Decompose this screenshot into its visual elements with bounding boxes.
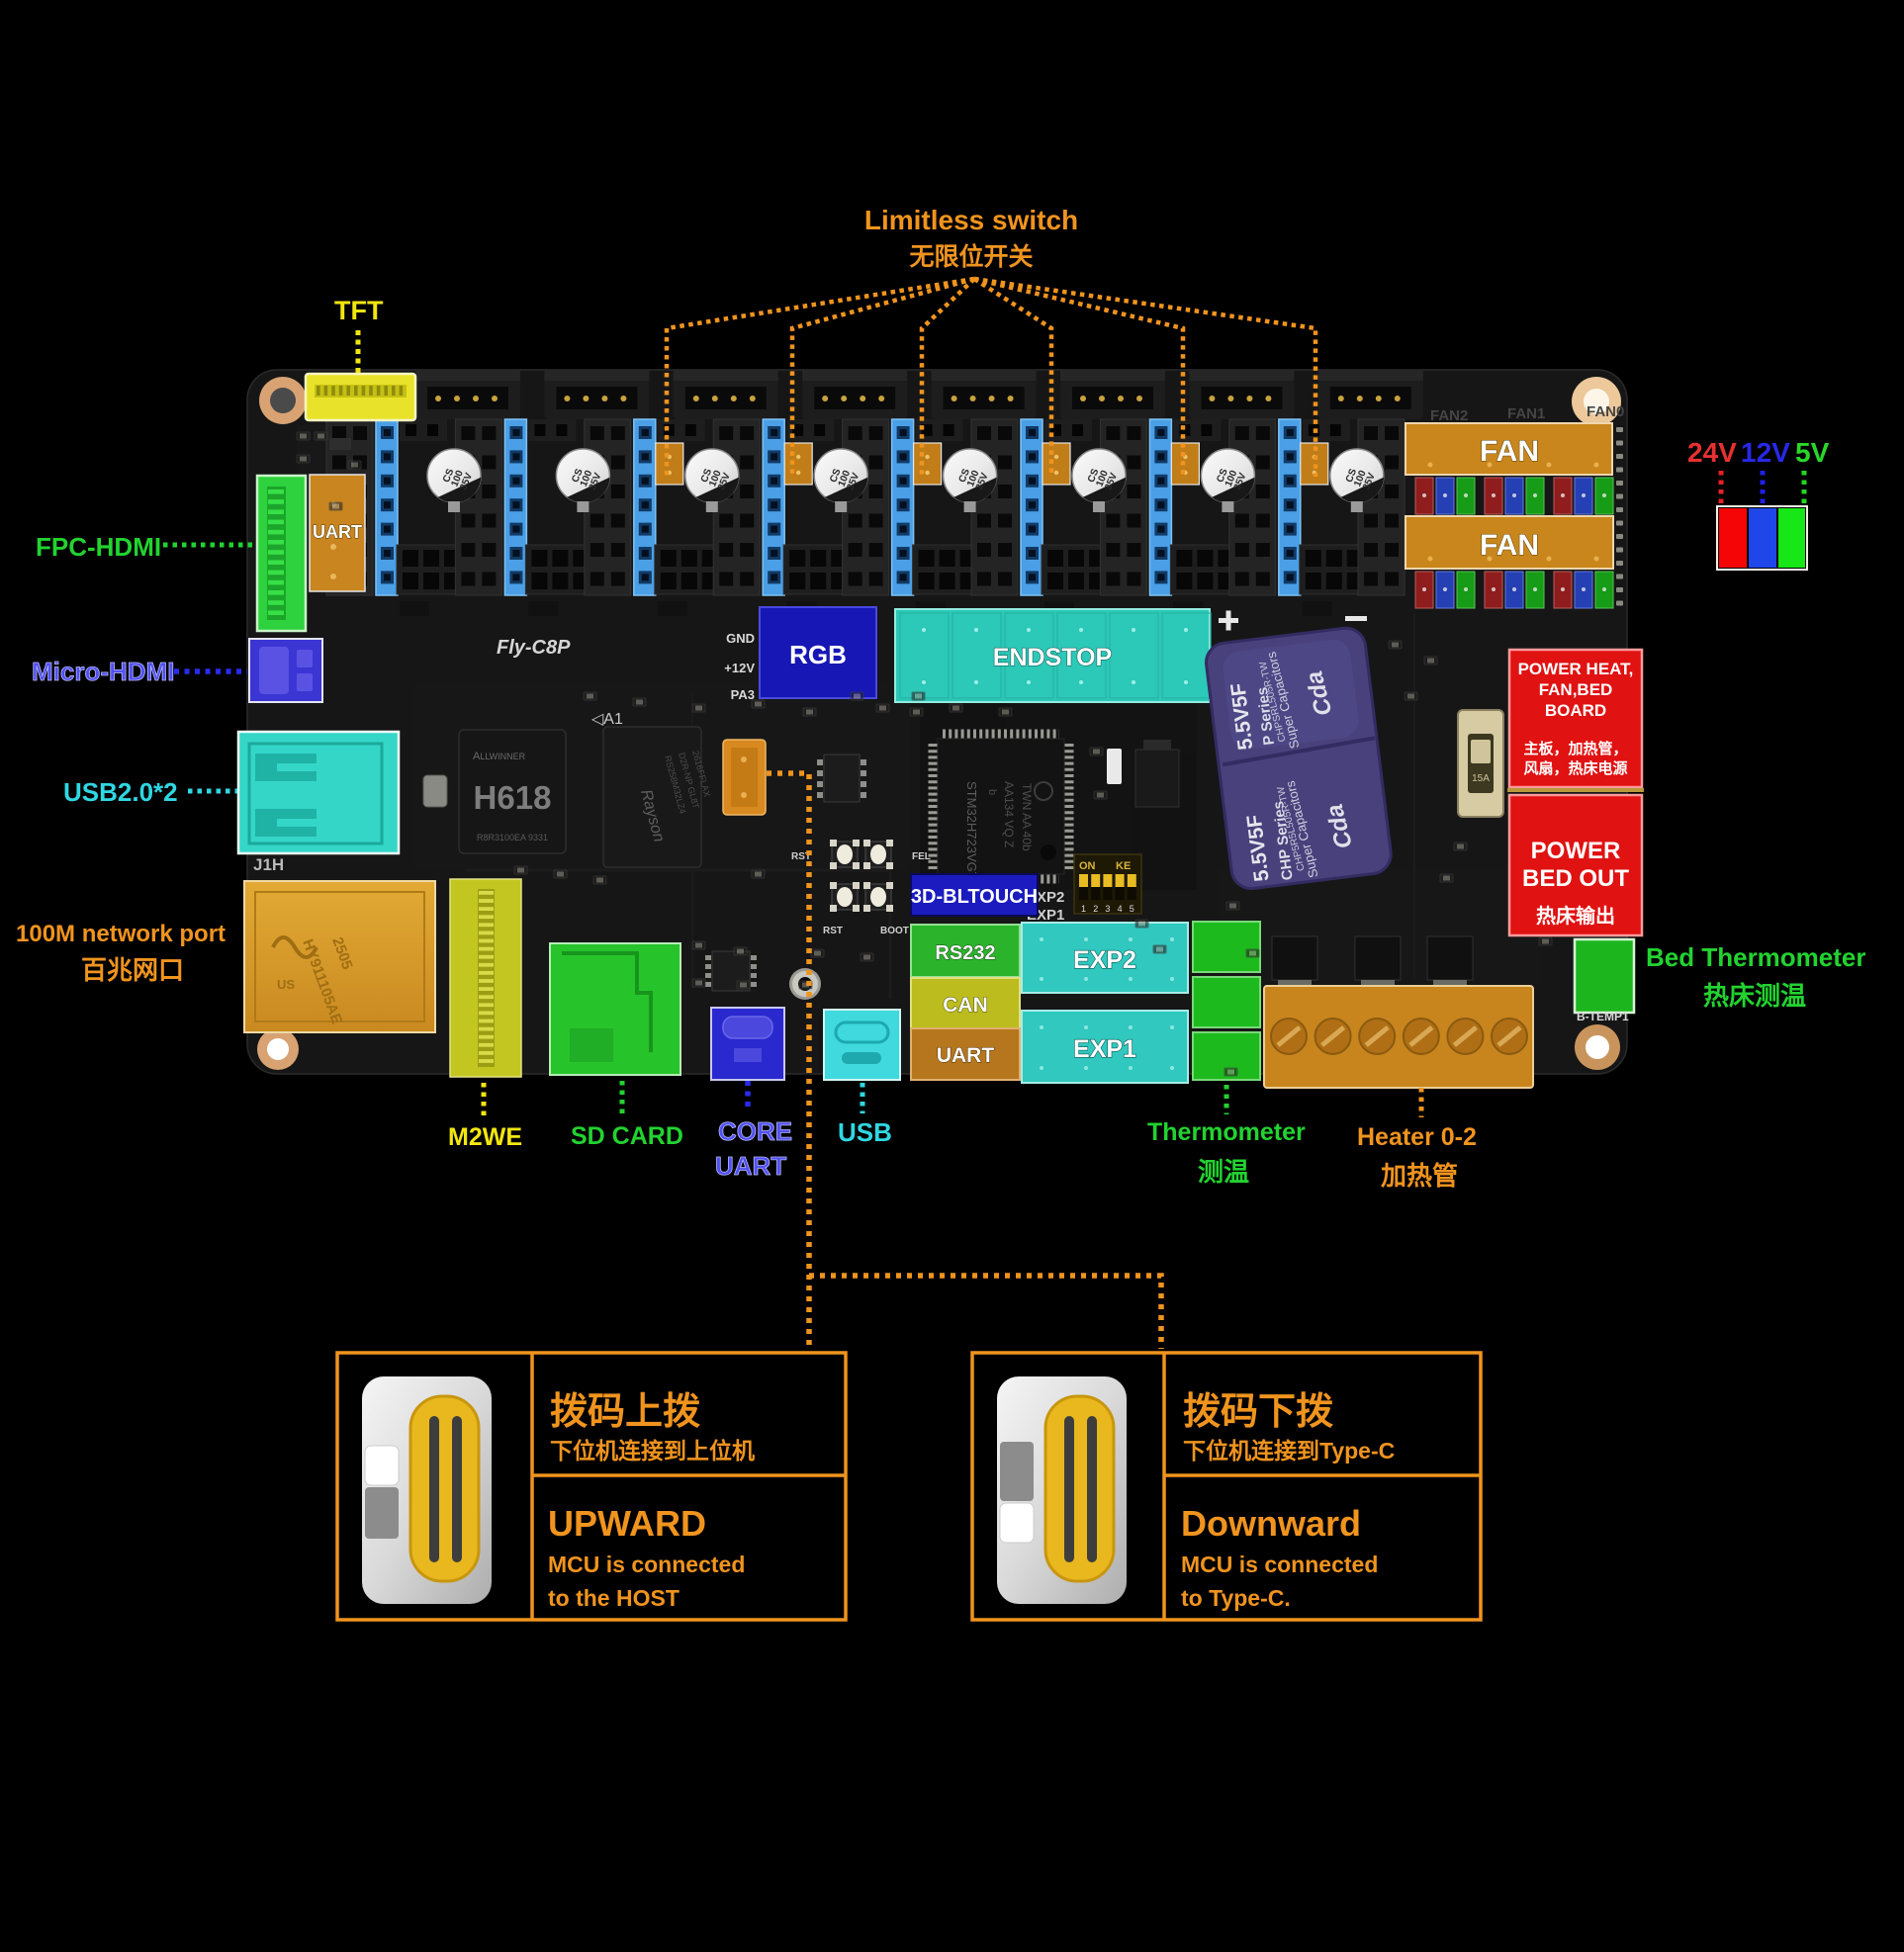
svg-text:无限位开关: 无限位开关 [909, 242, 1033, 271]
svg-text:◁A1: ◁A1 [591, 711, 623, 728]
svg-text:USB: USB [838, 1117, 892, 1147]
svg-text:b: b [986, 789, 998, 795]
svg-text:100M network port: 100M network port [16, 921, 226, 947]
svg-text:百兆网口: 百兆网口 [81, 955, 184, 985]
svg-text:BOOT: BOOT [880, 926, 909, 936]
svg-text:下位机连接到Type-C: 下位机连接到Type-C [1183, 1438, 1395, 1464]
svg-text:TFT: TFT [334, 296, 384, 325]
svg-text:15A: 15A [1472, 773, 1490, 784]
svg-text:FEL: FEL [912, 851, 931, 862]
svg-text:to the HOST: to the HOST [548, 1585, 680, 1611]
svg-text:Heater 0-2: Heater 0-2 [1357, 1123, 1477, 1151]
svg-text:下位机连接到上位机: 下位机连接到上位机 [550, 1438, 755, 1464]
svg-text:1: 1 [1081, 904, 1086, 914]
svg-text:US: US [277, 977, 295, 992]
svg-text:拨码上拨: 拨码上拨 [550, 1391, 700, 1433]
svg-text:测温: 测温 [1198, 1157, 1249, 1187]
svg-text:ENDSTOP: ENDSTOP [993, 644, 1112, 671]
svg-text:CORE: CORE [718, 1116, 792, 1146]
svg-text:SD CARD: SD CARD [571, 1122, 683, 1150]
svg-text:H618: H618 [474, 779, 552, 816]
svg-text:AA134 VQ Z: AA134 VQ Z [1002, 781, 1016, 847]
svg-text:POWER: POWER [1531, 838, 1621, 864]
svg-text:Fly-C8P: Fly-C8P [497, 637, 571, 659]
svg-text:+12V: +12V [724, 661, 755, 675]
svg-text:4: 4 [1118, 904, 1123, 914]
svg-text:RST: RST [823, 926, 843, 936]
svg-text:3D-BLTOUCH: 3D-BLTOUCH [911, 886, 1038, 908]
svg-text:KE: KE [1116, 860, 1131, 872]
svg-text:热床输出: 热床输出 [1536, 904, 1615, 928]
svg-text:STM32H723VGT: STM32H723VGT [964, 781, 979, 880]
svg-text:BOARD: BOARD [1545, 701, 1606, 720]
svg-text:Downward: Downward [1181, 1503, 1361, 1544]
svg-text:PA3: PA3 [731, 687, 755, 702]
svg-text:Bed Thermometer: Bed Thermometer [1646, 942, 1866, 972]
svg-text:ALLWINNER: ALLWINNER [473, 751, 526, 762]
svg-text:BED OUT: BED OUT [1522, 865, 1629, 892]
svg-text:USB2.0*2: USB2.0*2 [63, 777, 178, 807]
svg-text:M2WE: M2WE [448, 1123, 522, 1151]
svg-text:UPWARD: UPWARD [548, 1503, 706, 1544]
svg-text:FAN2: FAN2 [1430, 407, 1468, 424]
svg-text:24V: 24V [1687, 437, 1737, 468]
svg-text:Thermometer: Thermometer [1147, 1118, 1306, 1146]
svg-text:ON: ON [1079, 860, 1096, 872]
svg-text:TWN AA 40b: TWN AA 40b [1020, 783, 1034, 851]
svg-text:2: 2 [1093, 904, 1098, 914]
svg-text:3: 3 [1105, 904, 1110, 914]
svg-text:R8R3100EA 9331: R8R3100EA 9331 [477, 833, 548, 843]
svg-text:FAN1: FAN1 [1507, 405, 1545, 422]
svg-text:POWER HEAT,: POWER HEAT, [1518, 660, 1634, 678]
svg-text:FPC-HDMI: FPC-HDMI [36, 532, 161, 562]
svg-text:5V: 5V [1795, 437, 1830, 468]
svg-text:MCU is connected: MCU is connected [548, 1552, 745, 1577]
svg-text:FAN,BED: FAN,BED [1539, 680, 1613, 699]
svg-text:to Type-C.: to Type-C. [1181, 1585, 1291, 1611]
svg-text:GND: GND [726, 631, 755, 646]
svg-text:5: 5 [1130, 904, 1134, 914]
svg-text:拨码下拨: 拨码下拨 [1183, 1391, 1333, 1433]
svg-text:加热管: 加热管 [1381, 1161, 1458, 1191]
svg-text:EXP1: EXP1 [1073, 1035, 1136, 1063]
svg-text:主板，加热管，: 主板，加热管， [1523, 740, 1627, 757]
svg-text:Micro-HDMI: Micro-HDMI [32, 657, 174, 686]
svg-text:UART: UART [313, 522, 362, 542]
svg-text:RS232: RS232 [935, 942, 995, 964]
svg-text:Limitless switch: Limitless switch [864, 205, 1078, 235]
svg-text:风扇，热床电源: 风扇，热床电源 [1523, 759, 1627, 777]
svg-text:B-TEMP1: B-TEMP1 [1577, 1010, 1629, 1023]
svg-text:热床测温: 热床测温 [1703, 981, 1806, 1011]
svg-text:12V: 12V [1741, 437, 1790, 468]
svg-text:UART: UART [937, 1044, 994, 1067]
svg-text:J1H: J1H [253, 855, 284, 874]
svg-text:CAN: CAN [943, 994, 988, 1017]
svg-text:UART: UART [715, 1151, 786, 1181]
svg-text:MCU is connected: MCU is connected [1181, 1552, 1378, 1577]
svg-text:EXP2: EXP2 [1073, 946, 1136, 974]
svg-text:RGB: RGB [789, 640, 847, 669]
svg-text:FAN0: FAN0 [1587, 403, 1624, 420]
